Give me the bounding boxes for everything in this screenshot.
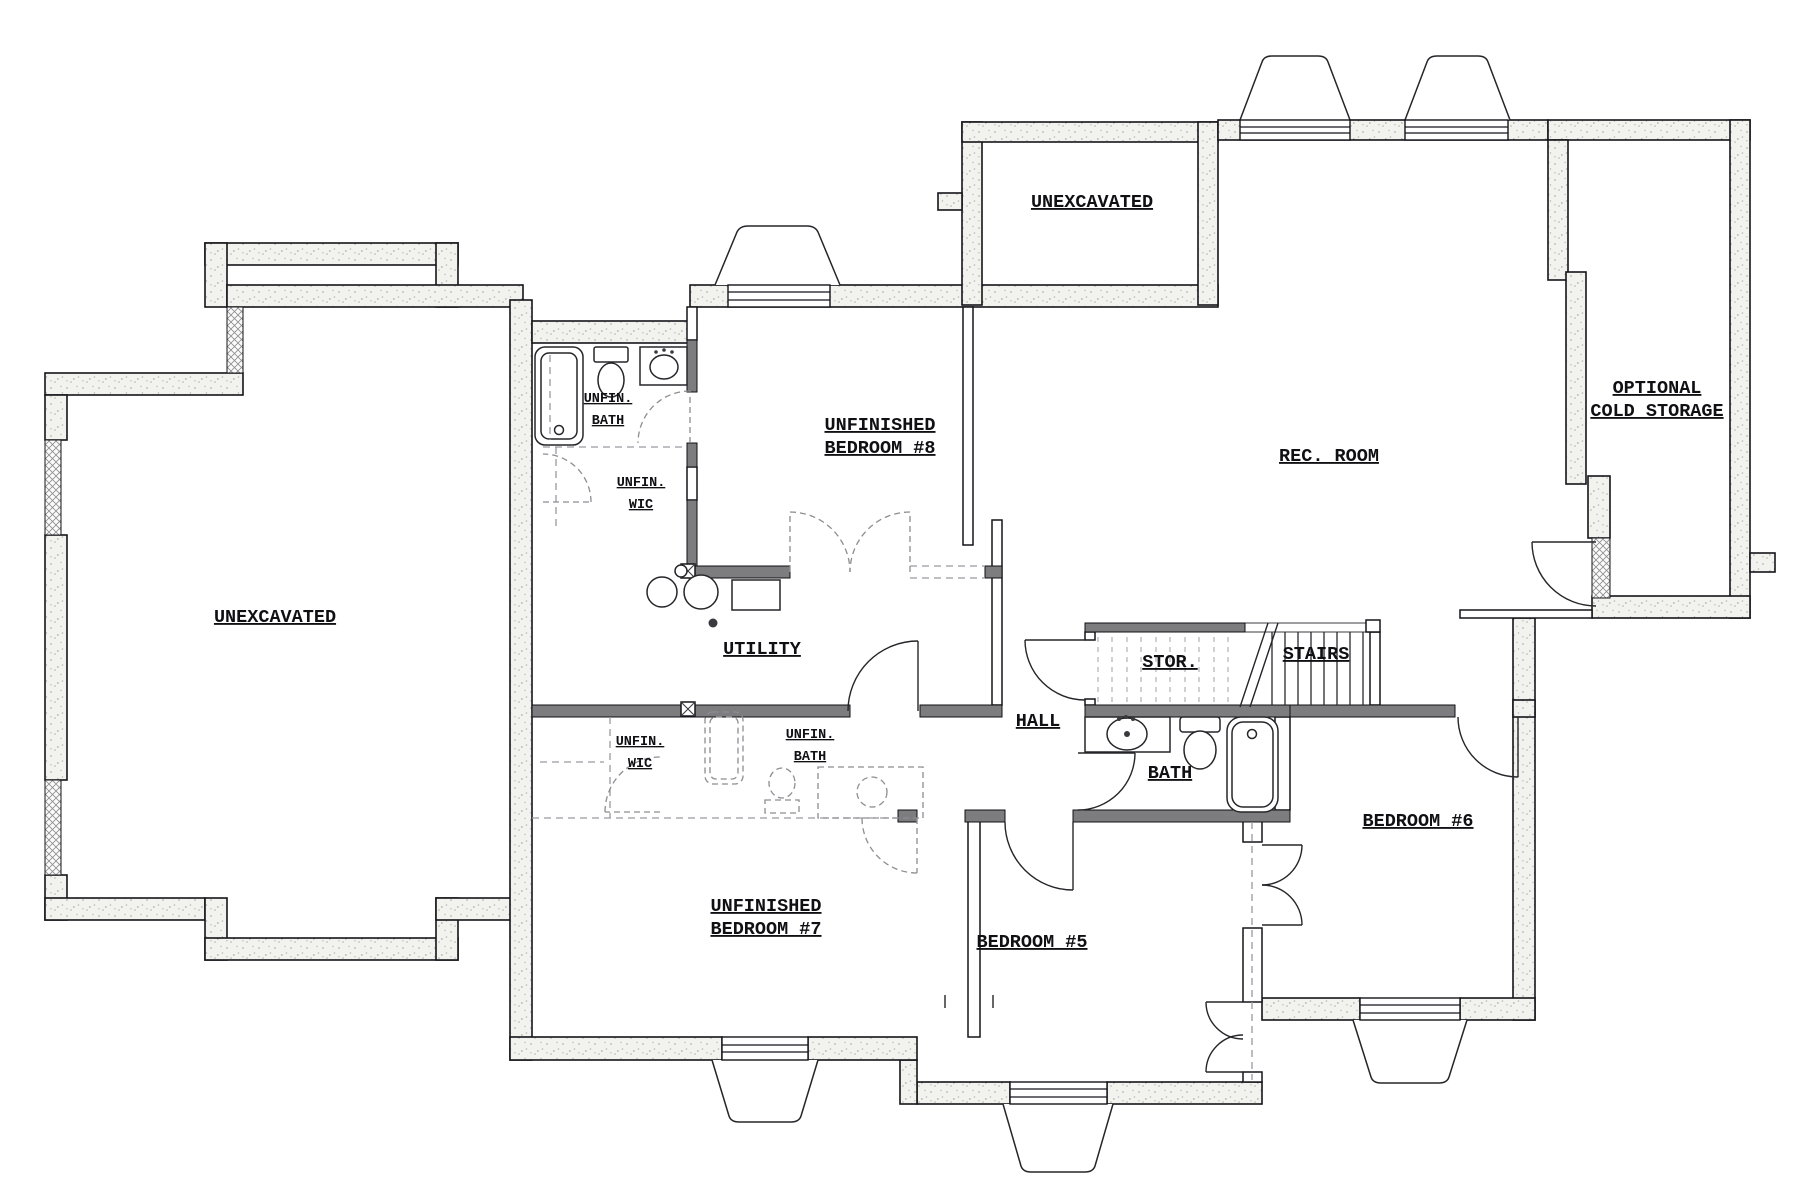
label-bedroom8-1: UNFINISHED bbox=[824, 415, 935, 436]
floor-drain bbox=[709, 619, 718, 628]
bay-bedroom6 bbox=[1353, 1020, 1467, 1083]
window-bedroom6 bbox=[1360, 998, 1460, 1020]
window-recroom-1 bbox=[1240, 120, 1350, 140]
label-bedroom7-2: BEDROOM #7 bbox=[710, 919, 821, 940]
toilet bbox=[1180, 717, 1220, 732]
toilet bbox=[594, 347, 628, 362]
label-unfin-bath-upper-2: BATH bbox=[592, 414, 624, 429]
label-unfin-bath-lower-1: UNFIN. bbox=[786, 728, 835, 743]
water-heater bbox=[647, 577, 677, 607]
window-bedroom7 bbox=[722, 1037, 808, 1060]
label-rec-room: REC. ROOM bbox=[1279, 446, 1379, 467]
label-cold-storage-1: OPTIONAL bbox=[1613, 378, 1702, 399]
window-bedroom8 bbox=[728, 285, 830, 307]
label-unfin-bath-upper-1: UNFIN. bbox=[584, 392, 633, 407]
label-unexcavated-upper: UNEXCAVATED bbox=[1031, 192, 1153, 213]
water-heater bbox=[684, 575, 718, 609]
label-bedroom6: BEDROOM #6 bbox=[1362, 811, 1473, 832]
label-bedroom5: BEDROOM #5 bbox=[976, 932, 1087, 953]
label-bedroom7-1: UNFINISHED bbox=[710, 896, 821, 917]
label-stairs: STAIRS bbox=[1283, 644, 1350, 665]
label-hall: HALL bbox=[1016, 711, 1060, 732]
junction-box-icon bbox=[681, 702, 695, 716]
bay-bedroom5 bbox=[1003, 1104, 1113, 1172]
label-unfin-bath-lower-2: BATH bbox=[794, 750, 826, 765]
label-stor: STOR. bbox=[1142, 652, 1198, 673]
label-unfin-wic-lower-1: UNFIN. bbox=[616, 735, 665, 750]
label-unfin-wic-lower-2: WIC bbox=[628, 757, 652, 772]
label-unexcavated-left: UNEXCAVATED bbox=[214, 607, 336, 628]
label-cold-storage-2: COLD STORAGE bbox=[1590, 401, 1723, 422]
furnace bbox=[732, 580, 780, 610]
bay-bedroom7 bbox=[712, 1060, 818, 1122]
label-bedroom8-2: BEDROOM #8 bbox=[824, 438, 935, 459]
floor-plan-drawing: UNEXCAVATED UNEXCAVATED REC. ROOM OPTION… bbox=[0, 0, 1800, 1200]
label-bath: BATH bbox=[1148, 763, 1192, 784]
label-utility: UTILITY bbox=[723, 639, 802, 660]
window-bedroom5 bbox=[1010, 1082, 1107, 1104]
label-unfin-wic-upper-2: WIC bbox=[629, 498, 653, 513]
floor-plan-page: UNEXCAVATED UNEXCAVATED REC. ROOM OPTION… bbox=[0, 0, 1800, 1200]
window-recroom-2 bbox=[1405, 120, 1508, 140]
label-unfin-wic-upper-1: UNFIN. bbox=[617, 476, 666, 491]
